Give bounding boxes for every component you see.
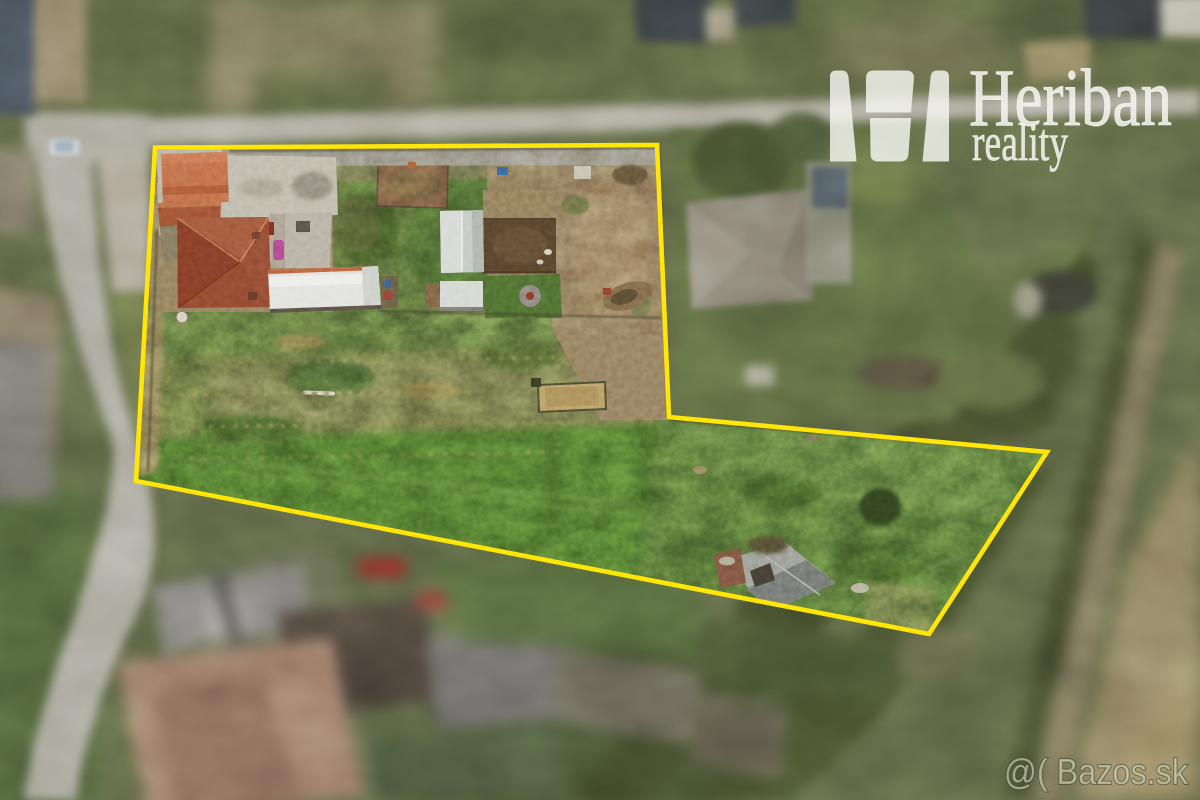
svg-text:@( Bazos.sk: @( Bazos.sk: [1004, 751, 1189, 792]
svg-text:reality: reality: [972, 114, 1068, 172]
